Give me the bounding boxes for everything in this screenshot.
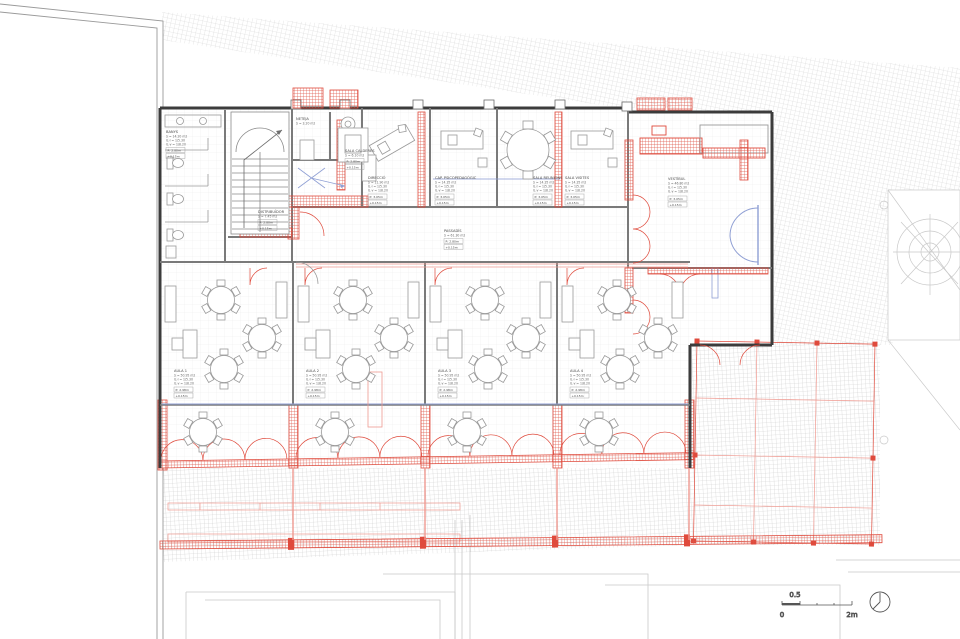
svg-text:P: 2.80m: P: 2.80m xyxy=(168,148,181,152)
svg-text:NETEJA: NETEJA xyxy=(296,117,309,121)
svg-text:0: 0 xyxy=(780,611,784,619)
svg-text:+0.15m: +0.15m xyxy=(572,394,584,398)
svg-text:+0.15m: +0.15m xyxy=(260,226,272,230)
svg-text:S = 7.45 m2: S = 7.45 m2 xyxy=(258,215,277,219)
svg-text:+0.15m: +0.15m xyxy=(176,394,188,398)
svg-text:CAP. PSICOPEDAGÒGIC: CAP. PSICOPEDAGÒGIC xyxy=(435,175,477,180)
svg-text:+0.15m: +0.15m xyxy=(670,203,682,207)
svg-text:+0.15m: +0.15m xyxy=(437,201,449,205)
parcel-boundary xyxy=(0,4,163,639)
svg-text:2m: 2m xyxy=(846,611,857,619)
svg-text:AULA 4: AULA 4 xyxy=(570,369,584,373)
svg-text:P: 2.98m: P: 2.98m xyxy=(176,388,189,392)
svg-text:S = 61.30 m2: S = 61.30 m2 xyxy=(444,234,465,238)
svg-text:DIRECCIÓ: DIRECCIÓ xyxy=(368,175,386,180)
svg-text:+0.15m: +0.15m xyxy=(535,201,547,205)
svg-text:SALA VISITES: SALA VISITES xyxy=(565,176,590,180)
svg-text:AULA 1: AULA 1 xyxy=(174,369,187,373)
svg-text:IL·v = 1/8.20: IL·v = 1/8.20 xyxy=(438,382,458,386)
svg-text:P: 2.98m: P: 2.98m xyxy=(440,388,453,392)
svg-text:0.5: 0.5 xyxy=(789,591,800,599)
svg-text:+0.15m: +0.15m xyxy=(446,245,458,249)
svg-text:DISTRIBUÏDOR: DISTRIBUÏDOR xyxy=(258,209,285,214)
svg-text:AULA 3: AULA 3 xyxy=(438,369,451,373)
svg-text:IL·v = 1/8.20: IL·v = 1/8.20 xyxy=(368,189,388,193)
floor-plan-sheet: BANYS S = 14.20 m2 IL·l = 1/5.30 IL·v = … xyxy=(0,0,960,639)
svg-text:P: 2.80m: P: 2.80m xyxy=(446,239,459,243)
svg-text:PASSADÍS: PASSADÍS xyxy=(444,228,462,233)
svg-text:P: 2.98m: P: 2.98m xyxy=(308,388,321,392)
svg-text:S = 3.20 m2: S = 3.20 m2 xyxy=(296,122,315,126)
svg-text:IL·v = 1/8.20: IL·v = 1/8.20 xyxy=(668,190,688,194)
svg-text:SALA CALDERES: SALA CALDERES xyxy=(345,149,375,153)
svg-text:+0.15m: +0.15m xyxy=(370,201,382,205)
svg-text:P: 3.05m: P: 3.05m xyxy=(567,195,580,199)
svg-text:+0.15m: +0.15m xyxy=(308,394,320,398)
svg-text:P: 2.80m: P: 2.80m xyxy=(347,159,360,163)
svg-text:+0.15m: +0.15m xyxy=(168,154,180,158)
svg-text:VESTÍBUL: VESTÍBUL xyxy=(668,176,685,181)
svg-text:P: 3.05m: P: 3.05m xyxy=(437,195,450,199)
svg-text:IL·v = 1/8.20: IL·v = 1/8.20 xyxy=(570,382,590,386)
svg-text:SALA REUNIONS: SALA REUNIONS xyxy=(533,176,563,180)
svg-text:IL·v = 1/8.20: IL·v = 1/8.20 xyxy=(174,382,194,386)
svg-text:IL·v = 1/8.20: IL·v = 1/8.20 xyxy=(166,143,186,147)
svg-text:+0.15m: +0.15m xyxy=(440,394,452,398)
svg-text:+0.15m: +0.15m xyxy=(347,165,359,169)
svg-text:P: 2.80m: P: 2.80m xyxy=(260,220,273,224)
svg-text:P: 3.05m: P: 3.05m xyxy=(670,197,683,201)
svg-text:S = 6.10 m2: S = 6.10 m2 xyxy=(345,154,364,158)
floor-plan-canvas: BANYS S = 14.20 m2 IL·l = 1/5.30 IL·v = … xyxy=(0,0,960,639)
svg-text:IL·v = 1/8.20: IL·v = 1/8.20 xyxy=(533,189,553,193)
svg-text:+0.15m: +0.15m xyxy=(567,201,579,205)
svg-text:IL·v = 1/8.20: IL·v = 1/8.20 xyxy=(435,189,455,193)
svg-text:P: 2.98m: P: 2.98m xyxy=(572,388,585,392)
svg-text:IL·v = 1/8.20: IL·v = 1/8.20 xyxy=(565,189,585,193)
svg-text:P: 3.05m: P: 3.05m xyxy=(370,195,383,199)
svg-text:IL·v = 1/8.20: IL·v = 1/8.20 xyxy=(306,382,326,386)
svg-text:P: 3.05m: P: 3.05m xyxy=(535,195,548,199)
svg-text:AULA 2: AULA 2 xyxy=(306,369,319,373)
svg-text:BANYS: BANYS xyxy=(166,130,179,134)
